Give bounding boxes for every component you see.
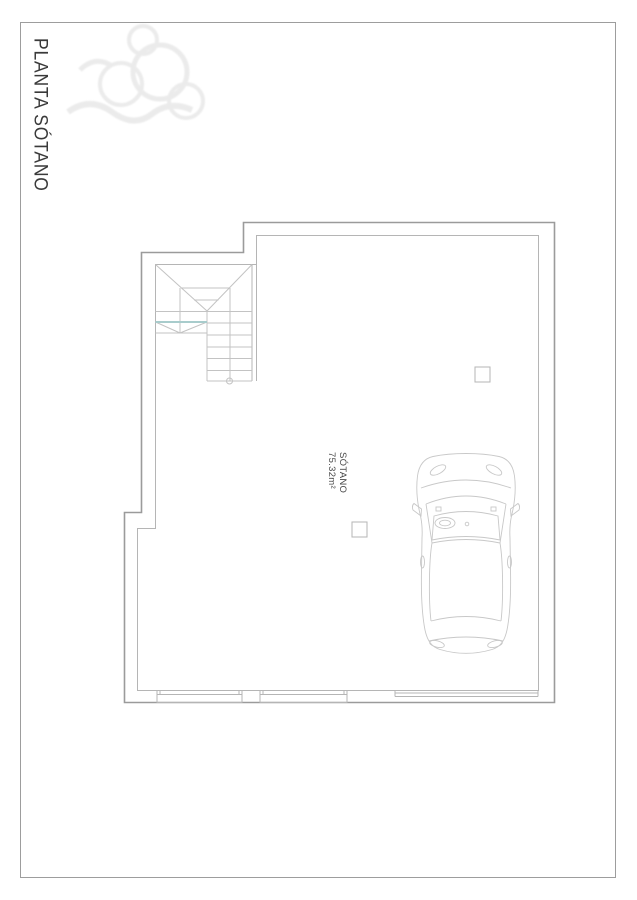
column-pillar xyxy=(475,367,490,382)
room-label: SÓTANO 75.32m² xyxy=(326,452,348,493)
steering-wheel xyxy=(435,518,455,529)
room-name: SÓTANO xyxy=(337,452,348,493)
column-pillar xyxy=(352,522,367,537)
car-top-view xyxy=(412,454,519,654)
floor-plan-drawing xyxy=(0,0,637,900)
room-area: 75.32m² xyxy=(326,452,337,493)
basement-windows xyxy=(157,691,347,703)
staircase xyxy=(156,265,257,385)
headlight xyxy=(485,463,504,478)
headlight xyxy=(429,463,448,478)
plan-title: PLANTA SÓTANO xyxy=(29,38,52,192)
sheet: PLANTA SÓTANO SÓTANO 75.32m² xyxy=(0,0,637,900)
garage-door xyxy=(395,691,538,697)
watermark xyxy=(68,26,203,121)
